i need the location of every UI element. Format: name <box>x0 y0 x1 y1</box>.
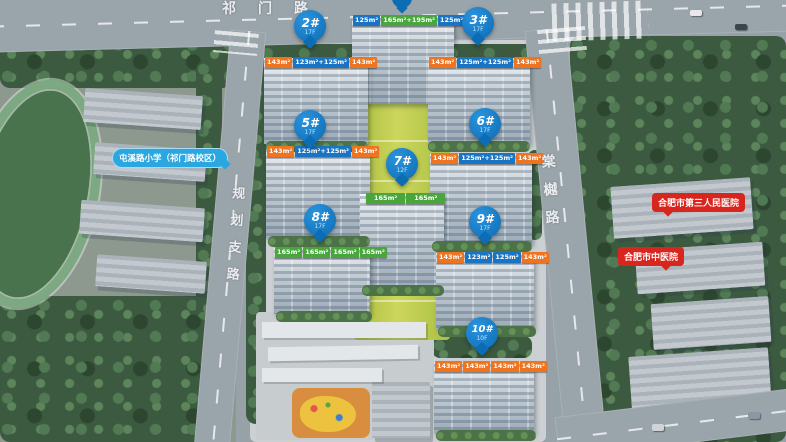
hospital-building <box>651 296 772 350</box>
area-tag: 143m² <box>520 361 547 372</box>
area-tag: 165m² <box>366 193 405 204</box>
area-tag: 143m² <box>491 361 518 372</box>
building-2-pin: 2# 17F <box>294 10 326 47</box>
building-3-pin: 3# 17F <box>462 7 494 44</box>
building-number: 2# <box>302 17 319 29</box>
playground <box>300 396 356 432</box>
car <box>652 424 664 431</box>
masterplan-aerial-render: 祁门路 规划支路 棠樾路 125m² 165m²+195m² 125m² 143… <box>0 0 786 442</box>
building-8-pin: 8# 17F <box>304 204 336 241</box>
building-8-area-tags: 165m² 165m² 165m² 165m² <box>275 247 387 258</box>
area-tag: 165m² <box>331 247 358 258</box>
building-number: 9# <box>477 213 494 225</box>
area-tag: 165m² <box>275 247 302 258</box>
hospital-tcm-label-text: 合肥市中医院 <box>624 253 678 263</box>
area-tag: 125m² <box>353 15 380 26</box>
area-tag: 125m²+125m² <box>295 146 351 157</box>
building-3-area-tags: 143m² 125m²+125m² 143m² <box>429 57 541 68</box>
building-9-area-tags: 143m² 123m² 125m² 143m² <box>437 252 549 263</box>
area-tag: 143m² <box>267 146 294 157</box>
building-number: 10# <box>472 325 493 335</box>
area-tag: 143m² <box>352 146 379 157</box>
building-5-area-tags: 143m² 125m²+125m² 143m² <box>267 146 379 157</box>
area-tag: 143m² <box>463 361 490 372</box>
building-6-area-tags: 143m² 125m²+125m² 143m² <box>431 153 543 164</box>
amenity-building <box>372 382 430 438</box>
area-tag: 165m² <box>360 247 387 258</box>
building-10 <box>434 362 534 434</box>
area-tag: 143m² <box>429 57 456 68</box>
area-tag: 125m²+125m² <box>459 153 515 164</box>
building-number: 6# <box>477 115 494 127</box>
shrub-row <box>362 285 444 296</box>
building-10-area-tags: 143m² 143m² 143m² 143m² <box>435 361 547 372</box>
hospital-third-label: 合肥市第三人民医院 <box>652 193 745 212</box>
building-8 <box>274 248 370 314</box>
area-tag: 125m²+125m² <box>457 57 513 68</box>
kindergarten-roof <box>262 368 382 382</box>
building-7-pin: 7# 12F <box>386 148 418 185</box>
area-tag: 165m²+195m² <box>381 15 437 26</box>
area-tag: 143m² <box>514 57 541 68</box>
area-tag: 143m² <box>437 252 464 263</box>
shrub-row <box>436 430 536 441</box>
area-tag: 143m² <box>522 252 549 263</box>
area-tag: 143m² <box>431 153 458 164</box>
building-7 <box>360 194 444 288</box>
building-2-area-tags: 143m² 123m²+125m² 143m² <box>265 57 377 68</box>
building-1-area-tags: 125m² 165m²+195m² 125m² <box>353 15 465 26</box>
building-number: 8# <box>312 211 329 223</box>
area-tag: 165m² <box>303 247 330 258</box>
building-floors: 10F <box>476 336 487 342</box>
area-tag: 143m² <box>265 57 292 68</box>
crosswalk <box>537 26 587 54</box>
crosswalk <box>213 30 259 56</box>
kindergarten-roof <box>268 345 418 362</box>
area-tag: 123m²+125m² <box>293 57 349 68</box>
building-number: 5# <box>302 117 319 129</box>
car <box>690 10 702 16</box>
car <box>735 24 747 30</box>
hospital-tcm-label: 合肥市中医院 <box>618 247 684 266</box>
building-number: 7# <box>394 155 411 167</box>
building-10-pin: 10# 10F <box>466 317 498 354</box>
building-9-pin: 9# 17F <box>469 206 501 243</box>
shrub-row <box>276 311 372 322</box>
school-label-text: 屯溪路小学（祁门路校区） <box>119 154 221 164</box>
area-tag: 123m² <box>465 252 492 263</box>
area-tag: 143m² <box>435 361 462 372</box>
area-tag: 165m² <box>406 193 445 204</box>
area-tag: 125m² <box>493 252 520 263</box>
area-tag: 143m² <box>350 57 377 68</box>
building-5-pin: 5# 17F <box>294 110 326 147</box>
kindergarten-roof <box>262 322 426 338</box>
building-7-area-tags: 165m² 165m² <box>366 193 445 204</box>
school-label: 屯溪路小学（祁门路校区） <box>112 148 228 168</box>
car <box>748 412 760 419</box>
building-6-pin: 6# 17F <box>469 108 501 145</box>
building-number: 3# <box>470 14 487 26</box>
